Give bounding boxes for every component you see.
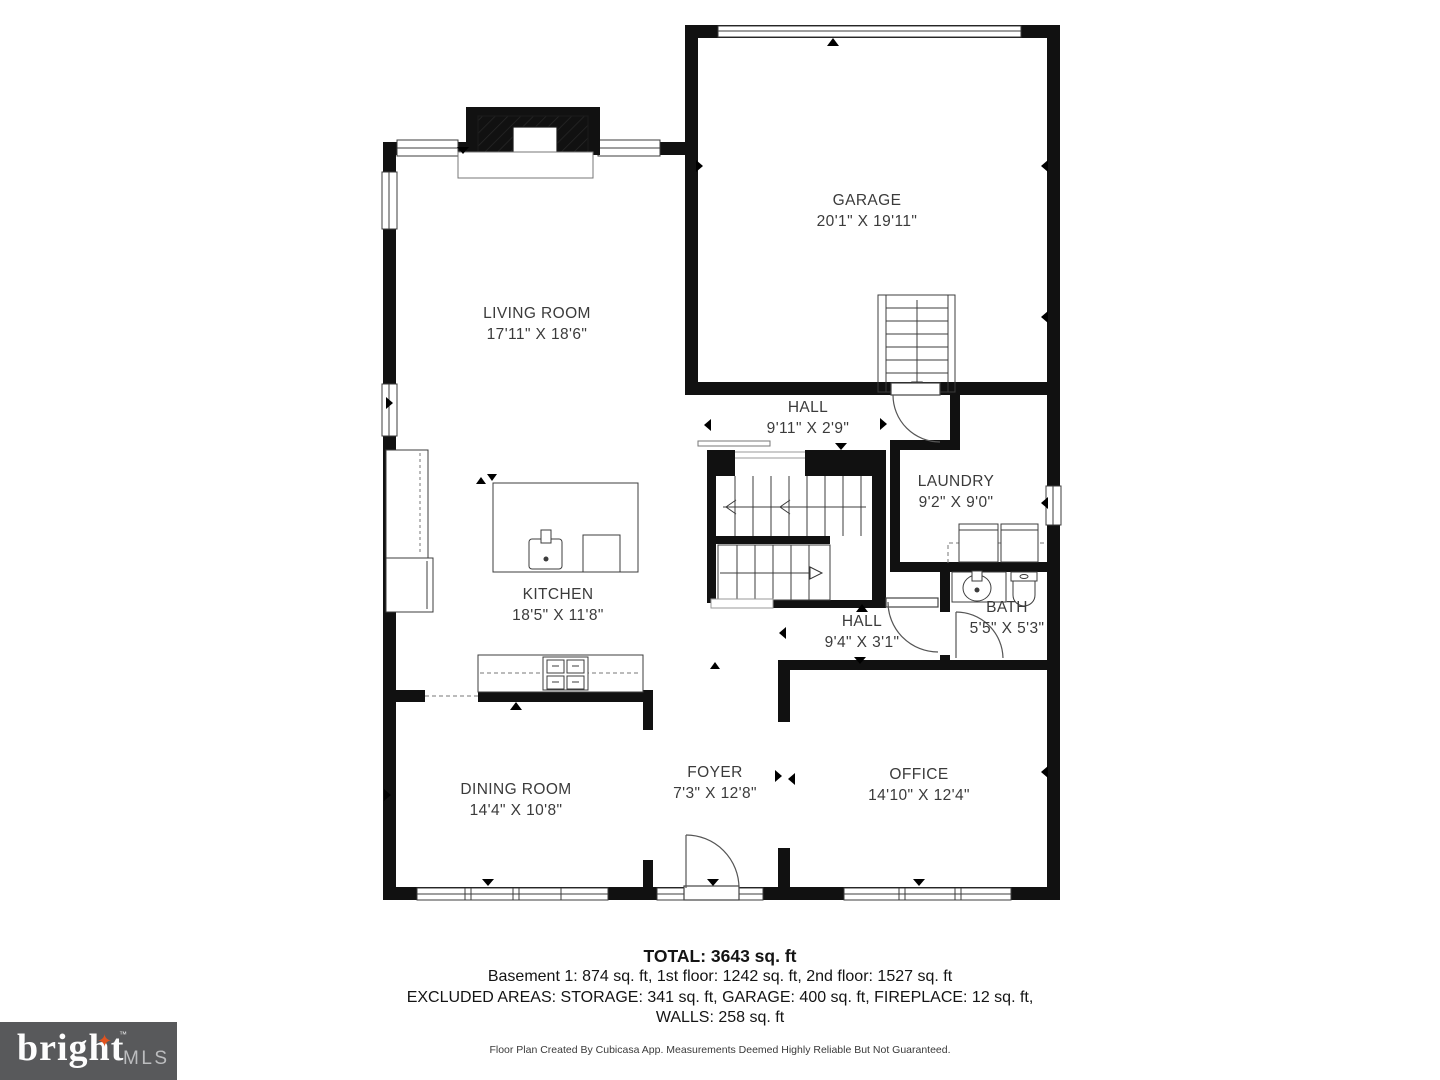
floor-plan-page: GARAGE 20'1" X 19'11" LIVING ROOM 17'11"… [0, 0, 1440, 1080]
stair-railing [698, 441, 770, 446]
floor-areas: Basement 1: 874 sq. ft, 1st floor: 1242 … [0, 967, 1440, 988]
room-dims-foyer: 7'3" X 12'8" [673, 785, 757, 802]
walls-area: WALLS: 258 sq. ft [0, 1008, 1440, 1029]
room-label-kitchen: KITCHEN [523, 586, 594, 603]
window-living-top-left [397, 140, 458, 156]
left-counter [386, 450, 428, 558]
star-icon: ✦ [97, 1032, 112, 1050]
sink-faucet [541, 530, 551, 543]
room-label-dining: DINING ROOM [460, 781, 571, 798]
room-label-hall-lower: HALL [842, 613, 882, 630]
room-dims-living: 17'11" X 18'6" [487, 326, 588, 343]
stair-landing [711, 599, 773, 608]
room-dims-hall-lower: 9'4" X 3'1" [825, 634, 900, 651]
window-foyer-sidelight-right [739, 888, 763, 900]
room-dims-kitchen: 18'5" X 11'8" [512, 607, 604, 624]
island-cooktop-square [583, 535, 620, 572]
window-dining-band [417, 888, 608, 900]
room-dims-hall-upper: 9'11" X 2'9" [767, 420, 850, 437]
room-dims-bath: 5'5" X 5'3" [970, 620, 1045, 637]
hearth [458, 152, 593, 178]
garage-door [718, 26, 1021, 37]
bright-mls-logo: bright ✦ ™ MLS [0, 1022, 177, 1080]
window-kitchen-left [382, 384, 397, 436]
room-dims-laundry: 9'2" X 9'0" [919, 494, 994, 511]
disclaimer: Floor Plan Created By Cubicasa App. Meas… [0, 1044, 1440, 1056]
laundry-fixtures [948, 524, 1047, 563]
excluded-areas: EXCLUDED AREAS: STORAGE: 341 sq. ft, GAR… [0, 988, 1440, 1009]
bath-faucet [972, 571, 982, 581]
room-dims-garage: 20'1" X 19'11" [817, 213, 918, 230]
window-foyer-sidelight-left [657, 888, 684, 900]
room-label-laundry: LAUNDRY [918, 473, 995, 490]
door-front [684, 835, 739, 900]
room-label-office: OFFICE [889, 766, 948, 783]
window-living-top-right [598, 140, 660, 156]
window-office-band [844, 888, 1011, 900]
kitchen-fixtures [386, 450, 643, 696]
room-label-bath: BATH [986, 599, 1028, 616]
floor-plan: GARAGE 20'1" X 19'11" LIVING ROOM 17'11"… [0, 0, 1440, 1080]
refrigerator [386, 558, 433, 612]
logo-mls-text: MLS [123, 1048, 170, 1070]
total-area: TOTAL: 3643 sq. ft [0, 946, 1440, 967]
room-label-foyer: FOYER [687, 764, 742, 781]
area-summary: TOTAL: 3643 sq. ft Basement 1: 874 sq. f… [0, 946, 1440, 1029]
room-dims-dining: 14'4" X 10'8" [470, 802, 563, 819]
door-garage-to-hall [891, 383, 940, 442]
trademark-symbol: ™ [119, 1030, 127, 1039]
room-label-hall-upper: HALL [788, 399, 828, 416]
room-label-garage: GARAGE [833, 192, 902, 209]
room-dims-office: 14'10" X 12'4" [868, 787, 970, 804]
room-label-living: LIVING ROOM [483, 305, 591, 322]
fireplace [458, 107, 600, 178]
window-laundry-right [1046, 486, 1061, 525]
stairs-garage [878, 295, 955, 392]
window-living-left-upper [382, 172, 397, 229]
